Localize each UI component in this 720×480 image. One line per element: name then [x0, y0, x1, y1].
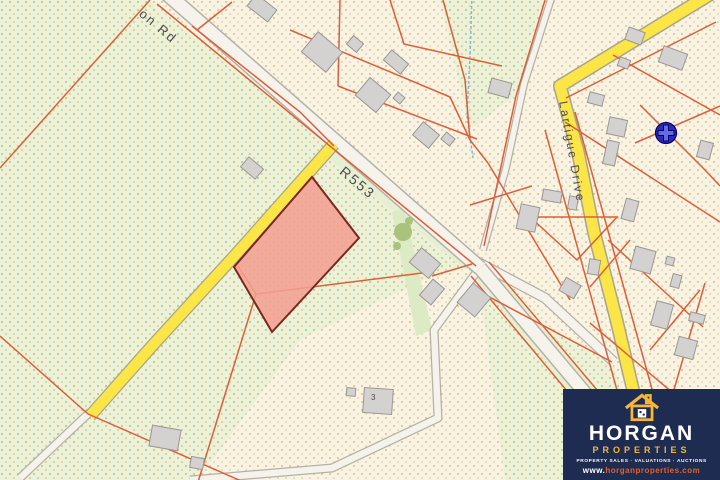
tree-clump [393, 242, 401, 250]
logo-brand-name: HORGAN [589, 423, 694, 444]
building [587, 259, 600, 276]
building [346, 388, 356, 397]
logo-sub-title: PROPERTIES [592, 446, 690, 455]
building [674, 336, 697, 359]
building [190, 456, 205, 469]
property-map-image: on RdR553Lartigue Drive3 HORGAN PROPERTI… [0, 0, 720, 480]
building [567, 196, 578, 210]
building [606, 117, 627, 137]
tree-clump [405, 217, 413, 225]
logo-website-domain: horganproperties.com [605, 466, 700, 475]
logo-services-line: PROPERTY SALES · VALUATIONS · AUCTIONS [576, 458, 706, 463]
tree-clump [394, 223, 412, 241]
building [665, 256, 675, 266]
building [149, 425, 181, 451]
house-icon [624, 392, 660, 422]
logo-website-prefix: www. [583, 466, 606, 475]
building [363, 388, 394, 415]
location-marker [656, 123, 677, 144]
agency-logo: HORGAN PROPERTIES PROPERTY SALES · VALUA… [563, 389, 720, 480]
logo-website: www.horganproperties.com [583, 466, 701, 476]
